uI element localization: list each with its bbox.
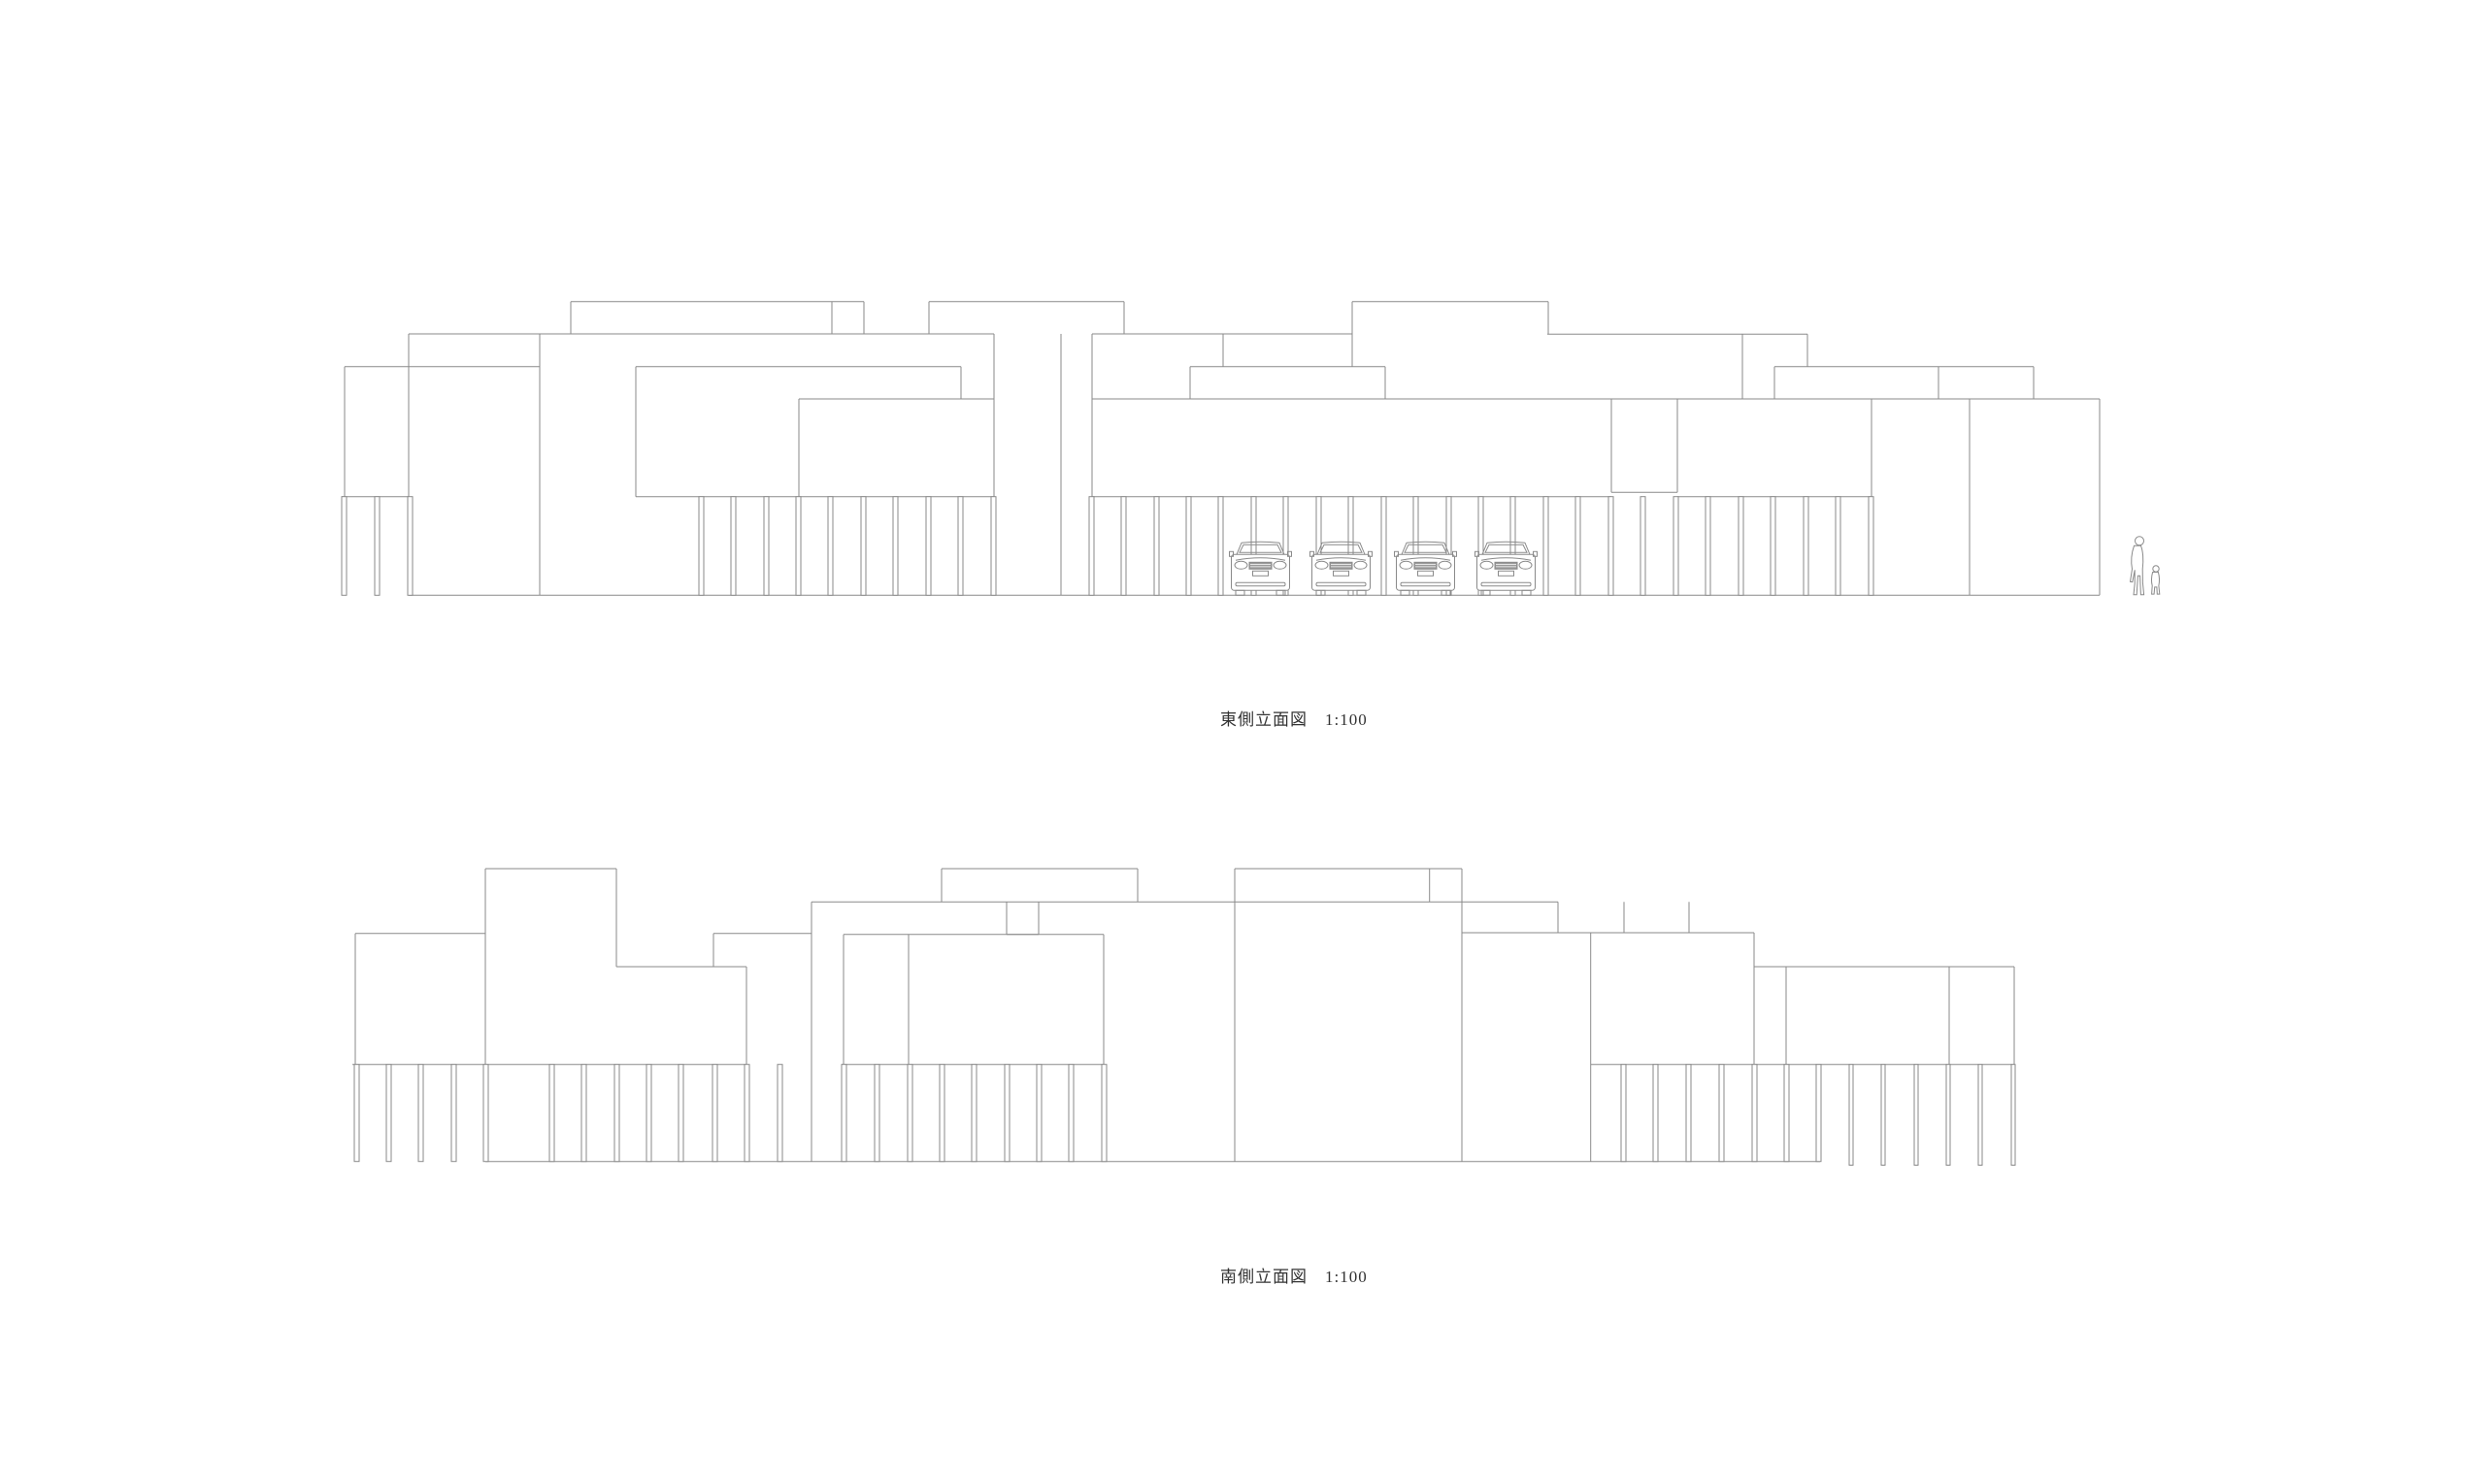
pilotis-column [1608,497,1613,596]
pilotis-column [1752,1065,1757,1162]
pilotis-column [1739,497,1743,596]
adult-figure [2131,537,2144,595]
pilotis-column [1869,497,1873,596]
pilotis-column [699,497,704,596]
car [1310,542,1373,595]
pilotis-column [1543,497,1548,596]
elevation-drawing [0,0,2485,1484]
south-elevation-label: 南側立面図 1:100 [1220,1263,1368,1287]
car-windshield [1240,544,1281,552]
drawing-sheet: 東側立面図 1:100 南側立面図 1:100 [0,0,2485,1484]
pilotis-column [581,1065,586,1162]
pilotis-column [1686,1065,1691,1162]
car-grille [1495,562,1517,569]
car-windshield [1405,544,1446,552]
pilotis-column [1914,1065,1918,1166]
car-windshield [1320,544,1362,552]
pilotis-column [1719,1065,1724,1162]
pilotis-column [1653,1065,1658,1162]
car-wheel [1522,590,1531,595]
pilotis-column [731,497,736,596]
pilotis-column [1946,1065,1950,1166]
pilotis-column [354,1065,359,1162]
car-windshield [1485,544,1527,552]
pilotis-column [1037,1065,1042,1162]
pilotis-column [991,497,996,596]
pilotis-column [1771,497,1775,596]
pilotis-column [1849,1065,1853,1166]
car-grille [1330,562,1352,569]
pilotis-column [764,497,769,596]
pilotis-column [940,1065,944,1162]
car-wheel [1401,590,1409,595]
pilotis-column [958,497,963,596]
pilotis-column [908,1065,912,1162]
pilotis-column [1575,497,1580,596]
pilotis-column [893,497,898,596]
pilotis-column [1706,497,1710,596]
east-elevation-group [342,302,2160,596]
pilotis-column [2011,1065,2015,1166]
pilotis-column [614,1065,619,1162]
pilotis-column [1121,497,1126,596]
pilotis-column [926,497,931,596]
car-wheel [1357,590,1366,595]
pilotis-column [1836,497,1840,596]
car-grille [1249,562,1272,569]
pilotis-column [483,1065,488,1162]
pilotis-column [408,497,413,596]
pilotis-column [1978,1065,1982,1166]
pilotis-column [1218,497,1223,596]
pilotis-column [712,1065,717,1162]
child-figure [2152,566,2160,594]
pilotis-column [375,497,380,596]
pilotis-column [1069,1065,1074,1162]
pilotis-column [796,497,801,596]
pilotis-column [1881,1065,1885,1166]
pilotis-column [451,1065,456,1162]
south-elevation-group [352,869,2015,1166]
pilotis-column [386,1065,391,1162]
pilotis-column [1005,1065,1010,1162]
car-wheel [1236,590,1244,595]
pilotis-column [828,497,833,596]
pilotis-column [875,1065,879,1162]
pilotis-column [1804,497,1808,596]
pilotis-column [861,497,866,596]
pilotis-column [745,1065,749,1162]
car [1395,542,1457,595]
pilotis-column [1102,1065,1107,1162]
pilotis-column [1381,497,1386,596]
pilotis-column [1154,497,1159,596]
car [1475,542,1538,595]
pilotis-column [1640,497,1645,596]
pilotis-column [1784,1065,1789,1162]
car [1230,542,1292,595]
pilotis-column [549,1065,554,1162]
pilotis-column [778,1065,782,1162]
pilotis-column [646,1065,651,1162]
east-elevation-label: 東側立面図 1:100 [1220,706,1368,730]
pilotis-column [1673,497,1678,596]
pilotis-column [1621,1065,1626,1162]
pilotis-column [342,497,347,596]
pilotis-column [418,1065,423,1162]
pilotis-column [972,1065,977,1162]
pilotis-column [1186,497,1191,596]
pilotis-column [842,1065,846,1162]
pilotis-column [1089,497,1094,596]
pilotis-column [679,1065,683,1162]
pilotis-column [1816,1065,1821,1162]
car-grille [1414,562,1437,569]
